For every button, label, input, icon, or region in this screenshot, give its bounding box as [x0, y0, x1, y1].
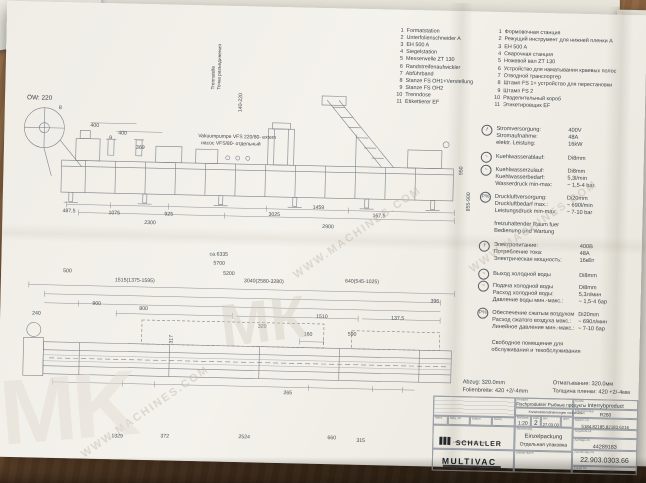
schaller-logo-cell: SCHALLER LEBENSMITTELTECHNIK — [432, 425, 515, 451]
part-name-de: Einzelpackung — [515, 433, 571, 440]
dim-label: 855-900 — [467, 192, 473, 211]
dim-label: 500 — [63, 269, 72, 275]
dim-label: 2300 — [144, 221, 156, 227]
legend-label-de: Formatstation — [407, 28, 440, 35]
dim-label: 320 — [258, 325, 267, 331]
dim-label: 3025 — [268, 213, 280, 219]
legend-no: 1 — [395, 28, 404, 34]
drawing-paper: 1Formatstation 2Unterfolienschneider A 3… — [0, 1, 646, 471]
electric-supply-icon: f — [481, 125, 492, 136]
dim-label: 3040(2580-3280) — [244, 279, 284, 286]
dim-label: 317 — [170, 335, 176, 344]
dim-label: 160 — [304, 333, 313, 339]
index-label: Index — [435, 417, 442, 420]
dim-label: 400 — [90, 124, 99, 130]
dim-label: 167,5 — [372, 214, 385, 220]
film-advance-de: Abzug: 320.0mm — [463, 379, 505, 386]
dim-label: 315 — [356, 439, 365, 445]
dim-label: 1459 — [313, 206, 325, 212]
compressed-air-icon-ru: P% — [477, 308, 488, 319]
electric-supply-icon-ru: f — [479, 241, 490, 252]
dim-label: 5700 — [213, 262, 225, 268]
compressed-air-icon: P% — [480, 192, 491, 203]
film-advance-ru: Отматывание: 320.0мм — [553, 380, 614, 388]
revision-rows — [433, 396, 515, 418]
top-view-drawing — [18, 279, 472, 401]
dim-label: 1510 — [316, 315, 328, 321]
water-inlet-icon-ru: ~ — [478, 281, 489, 292]
dim-label: 372 — [160, 434, 169, 440]
water-outlet-icon-ru: ~ — [478, 269, 489, 280]
changes-reserved-note: Konstruktionsänderungen vorbehalten — [529, 410, 560, 414]
film-width-de: Folienbreite: 420 +2/-4mm — [462, 387, 528, 395]
dim-label: 640(545-1025) — [345, 280, 379, 287]
water-outlet-icon: ~ — [481, 152, 492, 163]
photo-of-technical-drawing: 1Formatstation 2Unterfolienschneider A 3… — [0, 0, 646, 483]
dim-label: 396 — [430, 299, 439, 305]
drawing-content: 1Formatstation 2Unterfolienschneider A 3… — [0, 0, 646, 483]
overall-length-label: ca.6335 — [209, 252, 228, 258]
water-inlet-icon: ~ — [480, 165, 491, 176]
film-width-ru: Толщина пленки: 420 +2/-4мм — [552, 388, 630, 396]
dim-label: 1515(1375-1595) — [115, 278, 155, 285]
dim-label: 660 — [327, 436, 336, 442]
dim-label: 925 — [164, 212, 173, 218]
dim-label: 2900 — [322, 225, 334, 231]
dim-label: 487,5 — [62, 209, 75, 215]
dim-label: 590 — [348, 333, 357, 339]
schaller-logo-bars — [439, 436, 442, 444]
dim-label: 369 — [136, 146, 145, 152]
dim-label: 1329 — [111, 434, 123, 440]
dim-label: 9 — [109, 136, 112, 142]
dim-label: 950 — [459, 166, 465, 175]
dim-label: 5200 — [223, 272, 235, 278]
dim-label: 400 — [118, 131, 127, 137]
dim-label: 137,5 — [391, 317, 404, 323]
dim-label: 265 — [283, 391, 292, 397]
callout-8: 8 — [59, 106, 62, 112]
legend-label-ru: Формовочная станция — [505, 29, 561, 36]
dim-label: 140-220 — [239, 93, 245, 112]
bottom-shadow — [0, 457, 646, 483]
separation-point-label-ru: Точка разъединения — [217, 44, 224, 90]
dim-label: 900 — [92, 302, 101, 308]
dim-label: 240 — [32, 311, 41, 317]
dim-label: 2524 — [238, 435, 250, 441]
dim-label: 1075 — [108, 211, 120, 217]
dim-label: 800 — [139, 307, 148, 313]
machine-legs — [64, 192, 440, 211]
opening-width-label: ÖW: 220 — [27, 94, 52, 102]
part-name-ru: Отдельная упаковка — [515, 441, 571, 448]
